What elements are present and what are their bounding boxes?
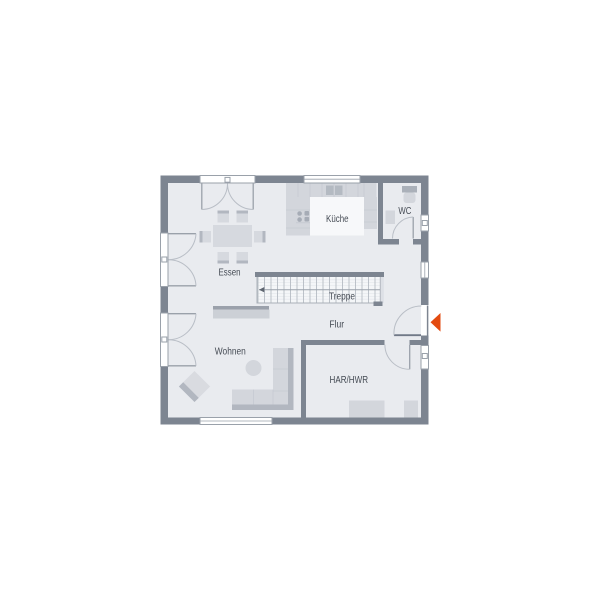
svg-text:Essen: Essen [219, 267, 241, 279]
svg-text:Flur: Flur [329, 319, 344, 331]
svg-text:WC: WC [398, 205, 411, 217]
svg-text:Wohnen: Wohnen [215, 346, 246, 358]
svg-text:Küche: Küche [326, 213, 349, 225]
svg-text:Treppe: Treppe [329, 291, 355, 303]
svg-text:HAR/HWR: HAR/HWR [330, 374, 369, 386]
